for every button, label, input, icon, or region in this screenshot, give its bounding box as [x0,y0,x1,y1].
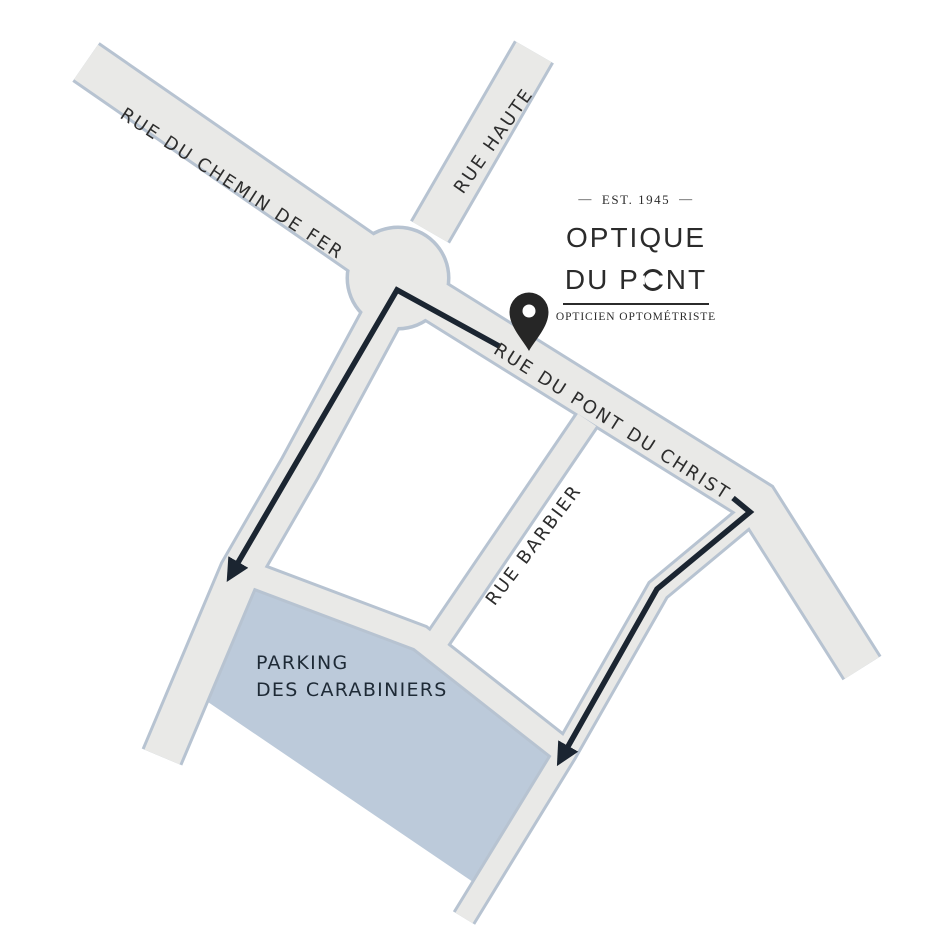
parking-label-line2: DES CARABINIERS [256,677,448,704]
logo-subtitle: OPTICIEN OPTOMÉTRISTE [556,311,716,323]
street-shape-rue-barbier [432,420,587,648]
logo-dash-left: — [578,191,593,207]
logo-title-line1: OPTIQUE [566,222,706,254]
logo-title-line2-post: NT [666,264,707,295]
logo-established-text: EST. 1945 [602,192,670,207]
logo-title-line2-pre: DU P [565,264,640,295]
logo-dash-right: — [679,191,694,207]
access-map: RUE DU CHEMIN DE FER RUE HAUTE RUE DU PO… [0,0,944,925]
logo-stylized-o [642,269,664,291]
logo-divider [563,303,709,305]
logo-title-line2: DU PNT [565,264,707,296]
parking-label: PARKING DES CARABINIERS [256,650,448,704]
logo-established: —EST. 1945— [569,192,702,208]
street-shape-rue-du-chemin-de-fer [86,62,398,278]
parking-label-line1: PARKING [256,650,448,677]
map-canvas [0,0,944,925]
